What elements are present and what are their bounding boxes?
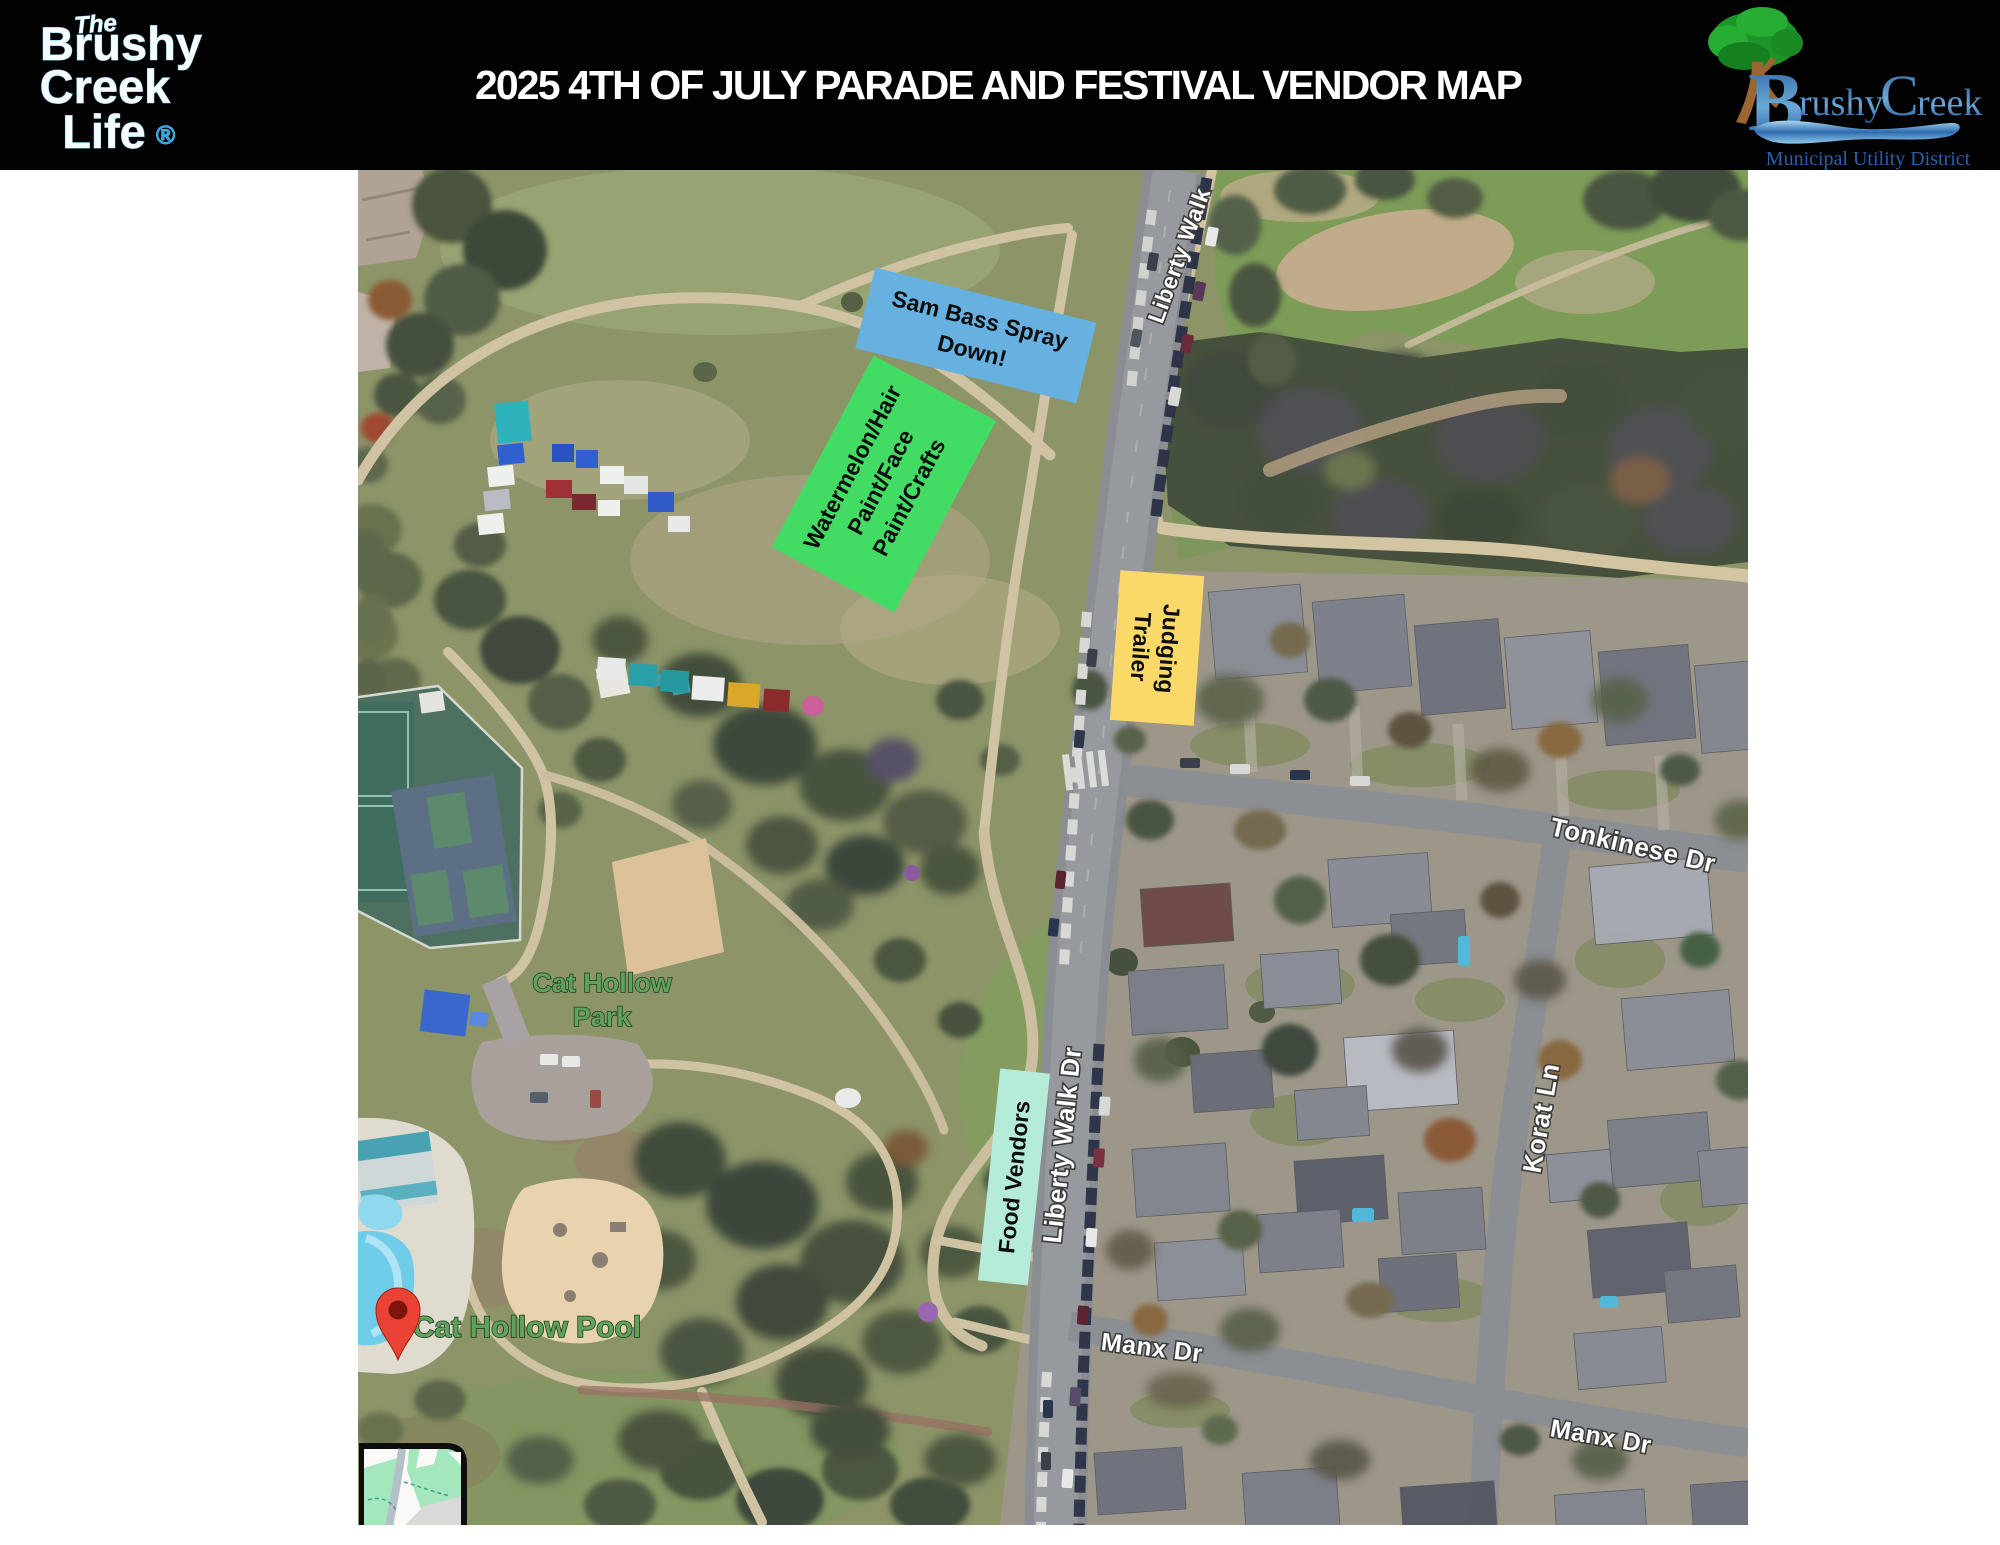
- svg-text:2025 4TH OF JULY PARADE AND FE: 2025 4TH OF JULY PARADE AND FESTIVAL VEN…: [475, 62, 1522, 108]
- svg-text:rushy: rushy: [1799, 82, 1883, 124]
- svg-text:Cat Hollow Pool: Cat Hollow Pool: [413, 1311, 641, 1344]
- svg-text:Life: Life: [62, 105, 146, 158]
- svg-text:reek: reek: [1917, 82, 1982, 124]
- svg-text:Park: Park: [573, 1002, 633, 1032]
- svg-text:Municipal Utility District: Municipal Utility District: [1766, 148, 1971, 170]
- svg-text:Trailer: Trailer: [1126, 612, 1157, 683]
- svg-text:Cat Hollow: Cat Hollow: [532, 968, 672, 998]
- svg-text:®: ®: [156, 120, 175, 150]
- svg-text:C: C: [1880, 63, 1919, 128]
